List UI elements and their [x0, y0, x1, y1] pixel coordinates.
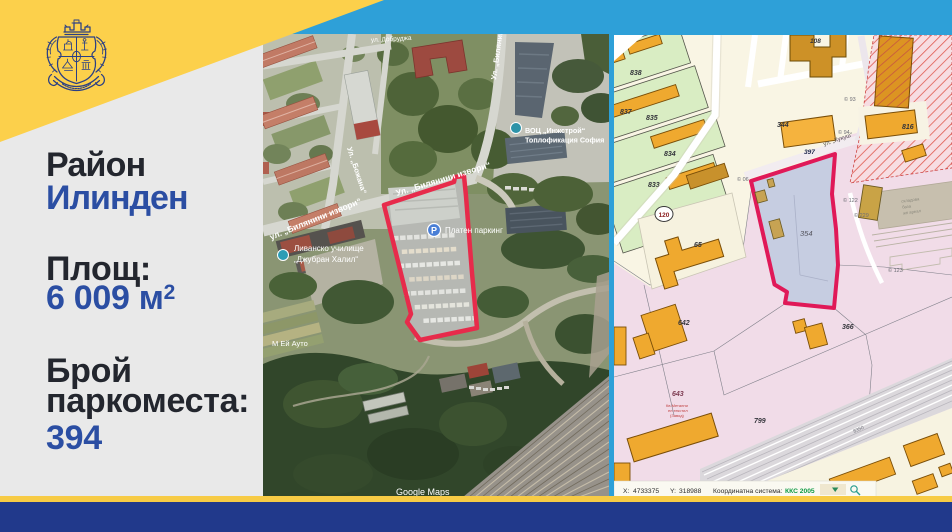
- svg-text:Ливанско училище: Ливанско училище: [294, 244, 364, 253]
- svg-text:799: 799: [754, 418, 766, 425]
- svg-text:354: 354: [800, 229, 813, 238]
- svg-text:344: 344: [777, 122, 789, 129]
- svg-text:М Ей Ауто: М Ей Ауто: [272, 339, 308, 348]
- svg-text:837: 837: [620, 109, 633, 116]
- svg-text:ВОЦ „Инжстрой“: ВОЦ „Инжстрой“: [525, 126, 586, 135]
- svg-text:397: 397: [804, 149, 815, 156]
- svg-text:838: 838: [630, 70, 642, 77]
- svg-text:834: 834: [664, 151, 676, 158]
- svg-text:Топлофикация София: Топлофикация София: [525, 136, 604, 145]
- svg-text:Платен паркинг: Платен паркинг: [445, 226, 503, 235]
- svg-text:© 229: © 229: [854, 212, 869, 219]
- svg-text:© 06: © 06: [737, 176, 749, 183]
- svg-text:„Джубран Халил“: „Джубран Халил“: [294, 255, 358, 264]
- svg-text:65: 65: [694, 242, 702, 249]
- svg-text:© 122: © 122: [843, 197, 858, 204]
- svg-text:642: 642: [678, 320, 690, 327]
- svg-text:366: 366: [842, 324, 854, 331]
- svg-text:© 123: © 123: [888, 267, 903, 274]
- svg-text:835: 835: [646, 115, 658, 122]
- svg-text:X:4733375Y:318988Координатна с: X:4733375Y:318988Координатна система:ККС…: [623, 488, 815, 495]
- svg-text:(Завод): (Завод): [670, 413, 685, 418]
- svg-text:© 93: © 93: [844, 96, 856, 103]
- svg-text:© 94: © 94: [838, 129, 850, 136]
- svg-text:816: 816: [902, 124, 914, 131]
- svg-text:643: 643: [672, 391, 684, 398]
- svg-text:108: 108: [810, 38, 821, 45]
- svg-text:P: P: [431, 226, 437, 236]
- svg-text:120: 120: [659, 212, 670, 219]
